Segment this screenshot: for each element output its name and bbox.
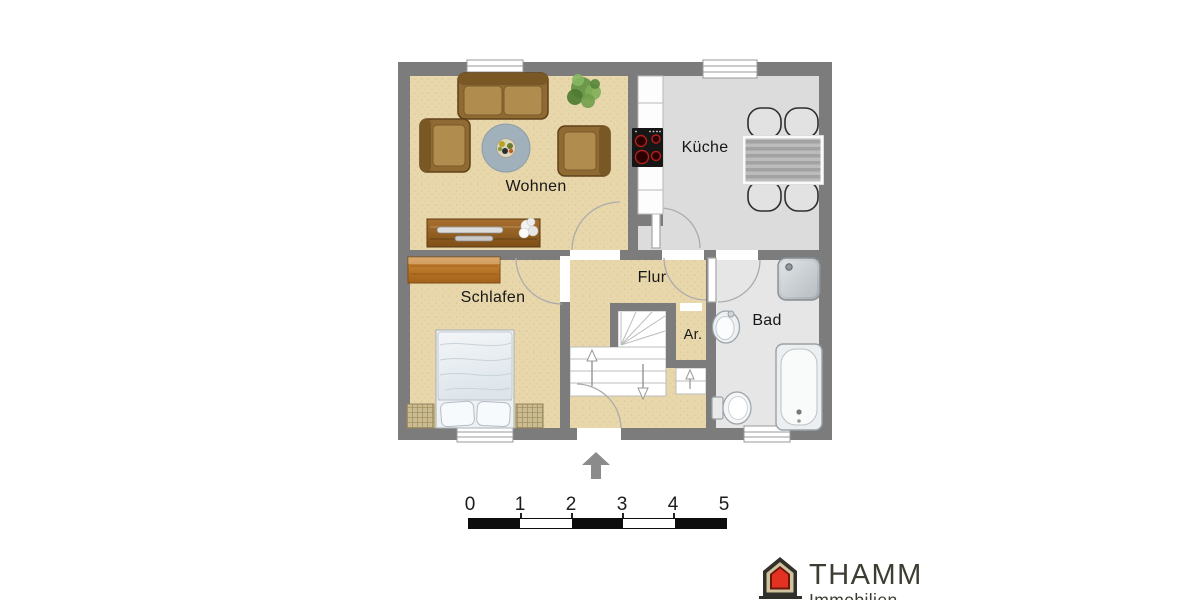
sideboard [427,218,540,247]
wall-stair-top [610,303,668,311]
armchair [420,119,470,172]
scale-segment [520,519,571,528]
drain [796,409,801,414]
scale-segment [469,519,520,528]
opening-bath [716,250,758,260]
sink [713,311,740,343]
shower [778,258,820,300]
opening-kitchen [662,250,704,260]
logo-subtitle: Immobilien [809,592,923,600]
dining-table [744,137,822,183]
pillow [440,401,475,427]
house-icon [758,556,802,600]
opening-storage [680,303,702,311]
entrance-arrow [582,452,610,479]
arrow-head [582,452,610,465]
opening-living [570,250,620,260]
room-label-wohnen: Wohnen [505,178,566,195]
arrow-stem [591,465,601,479]
wall-winder-left [610,311,618,347]
window [703,60,757,78]
chair [748,108,781,138]
wardrobe [408,257,500,283]
round-rug [482,124,530,172]
wall-left [398,62,410,440]
scale-segment [675,519,726,528]
chair [748,181,781,211]
opening-bedroom [560,256,570,302]
scale-segment [572,519,623,528]
agency-logo: THAMM Immobilien [758,556,923,600]
floorplan: Wohnen Küche Schlafen Flur Ar. Bad [396,54,834,444]
toilet [712,392,751,424]
chair [785,108,818,138]
scale-label: 5 [719,494,730,516]
opening-entrance [577,428,621,440]
scale-label: 0 [465,494,476,516]
sofa [458,73,548,119]
room-label-flur: Flur [638,269,667,286]
logo-text: THAMM Immobilien [809,556,923,600]
room-label-abstellraum: Ar. [684,327,703,343]
logo-brand-name: THAMM [809,561,923,590]
room-label-kueche: Küche [682,139,729,156]
scale-segments [468,518,727,529]
door-leaf-bath [708,258,716,302]
stove [632,128,663,167]
faucet [728,311,734,317]
chair [785,181,818,211]
room-label-schlafen: Schlafen [461,289,526,306]
wall-storage-bottom [666,360,716,368]
scale-segment [623,519,674,528]
wall-stair-storage [666,303,676,368]
nightstand [407,404,434,428]
scale-bar: 0 1 2 3 4 5 [468,494,727,532]
bed [436,330,514,428]
loveseat [558,126,610,176]
room-label-bad: Bad [752,312,781,329]
nightstand [516,404,543,428]
bathtub [776,344,822,430]
floorplan-page: Wohnen Küche Schlafen Flur Ar. Bad 0 1 2… [0,0,1200,600]
pillow [476,401,510,427]
